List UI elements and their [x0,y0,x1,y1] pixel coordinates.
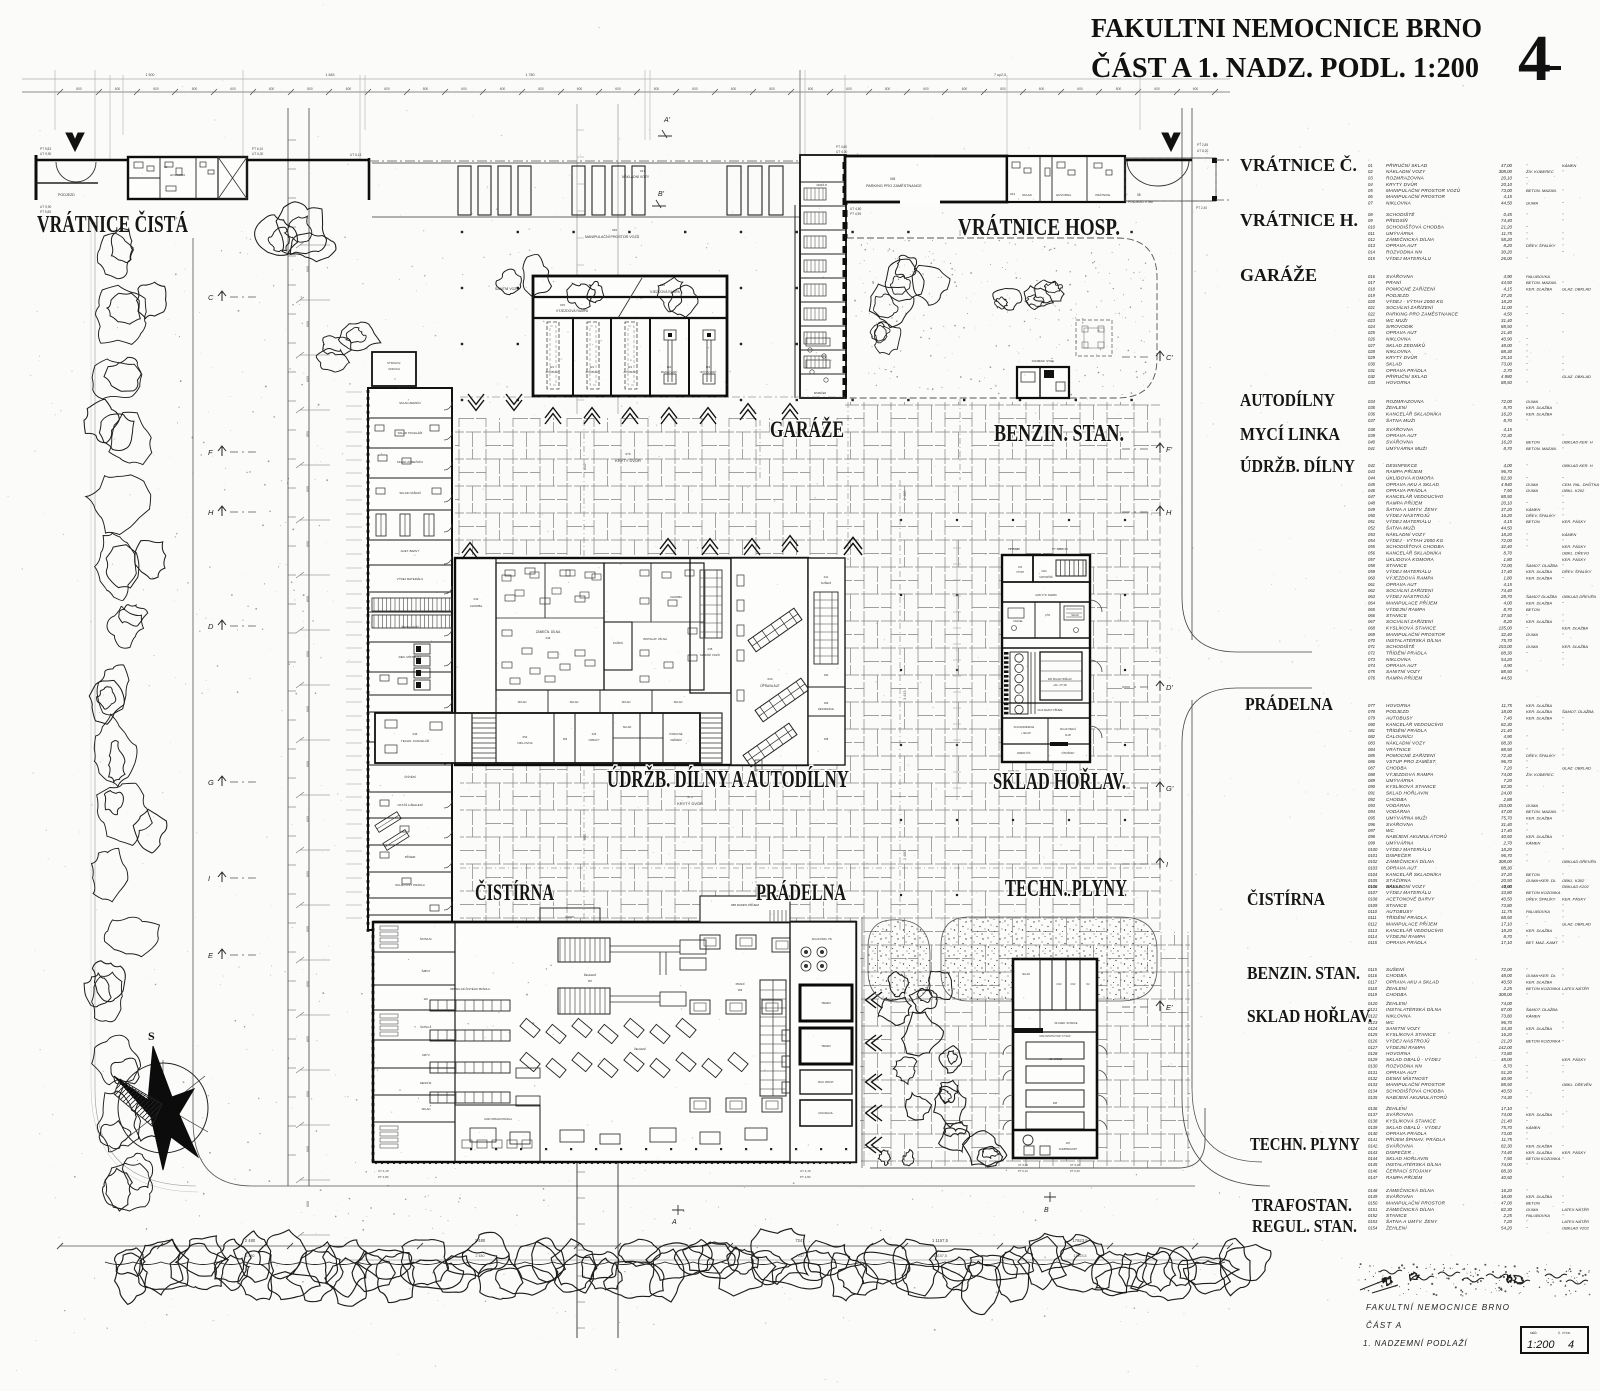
svg-text:600: 600 [923,87,929,91]
svg-text:RAMPA: RAMPA [565,915,574,919]
svg-text:600: 600 [306,431,310,437]
svg-text:POMOCNÉ ZAŘÍZENÍ: POMOCNÉ ZAŘÍZENÍ [1386,751,1436,758]
svg-text:2 480: 2 480 [903,850,907,860]
svg-text:049: 049 [1368,507,1376,512]
svg-text:016: 016 [1368,274,1376,279]
svg-text:600: 600 [384,87,390,91]
svg-text:078: 078 [1368,709,1376,714]
svg-text:INSTALAT. DÍLNA: INSTALAT. DÍLNA [643,637,667,641]
svg-text:17,10: 17,10 [1501,922,1513,927]
svg-text:059: 059 [1368,569,1376,574]
svg-text:20,50: 20,50 [1500,878,1513,883]
svg-text:PRANÍ: PRANÍ [736,982,745,986]
svg-text:SKLAD NÁŘADÍ: SKLAD NÁŘADÍ [399,490,420,495]
svg-text:LATEX NÁTĚR: LATEX NÁTĚR [1562,1207,1589,1212]
svg-text:SKLAD HOŘLAVIN: SKLAD HOŘLAVIN [1386,789,1429,796]
svg-text:KANCELÁŘ SKLADNÍKA: KANCELÁŘ SKLADNÍKA [1386,549,1441,556]
svg-text:0107: 0107 [1368,890,1378,895]
svg-text:SKLAD ZEDNÍCI: SKLAD ZEDNÍCI [399,401,421,405]
svg-text:2,70: 2,70 [1502,841,1512,846]
svg-text:0122 DESINFEKCE: 0122 DESINFEKCE [1014,727,1035,729]
svg-text:20,10: 20,10 [1500,182,1513,187]
svg-text:54,20: 54,20 [1501,1226,1513,1231]
svg-text:DISPEČER: DISPEČER [1386,1149,1412,1155]
svg-text:21,40: 21,40 [1500,330,1513,335]
svg-text:4,00: 4,00 [1503,601,1512,606]
svg-text:0118: 0118 [1368,986,1378,991]
svg-text:098 SKLAD ČISTÉHO PRÁDLA: 098 SKLAD ČISTÉHO PRÁDLA [450,986,490,991]
svg-text:0102: 0102 [1368,859,1378,864]
svg-text:VRÁTNICE ČISTÁ: VRÁTNICE ČISTÁ [37,211,188,238]
svg-text:011: 011 [1368,231,1375,236]
svg-text:PODJEZD: PODJEZD [58,193,75,197]
svg-text:600: 600 [306,981,310,987]
svg-text:KRYTÝ DVŮR: KRYTÝ DVŮR [615,458,641,463]
svg-text:SVÁŘOVNA: SVÁŘOVNA [1386,1192,1413,1199]
svg-text:S: S [148,1029,155,1043]
svg-text:11,00: 11,00 [1501,305,1512,310]
svg-text:0137: 0137 [1368,1112,1378,1117]
svg-text:UT 9,90: UT 9,90 [40,205,52,209]
svg-text:SKLAD OBALŮ - VÝDEJ: SKLAD OBALŮ - VÝDEJ [1386,1123,1441,1130]
svg-text:48,00: 48,00 [1501,343,1513,348]
svg-text:MANIPULAČNÍ PROSTOR: MANIPULAČNÍ PROSTOR [1386,631,1446,637]
svg-text:72,00: 72,00 [1501,538,1513,543]
svg-text:044: 044 [1368,476,1376,481]
svg-text:KER. DLAŽBA: KER. DLAŽBA [1526,703,1552,708]
svg-text:ŽEHLENÍ: ŽEHLENÍ [1385,1104,1407,1111]
svg-text:OPRAVA AUT: OPRAVA AUT [1386,866,1418,871]
svg-text:SKLAD HOŘLAV.: SKLAD HOŘLAV. [1247,1005,1372,1026]
svg-text:040: 040 [824,673,829,677]
svg-text:MANIPULACE PŘÍJEM: MANIPULACE PŘÍJEM [1386,599,1437,606]
svg-text:VÝDEJNÍ RAMPA: VÝDEJNÍ RAMPA [1386,933,1425,939]
svg-text:0139: 0139 [1368,1125,1378,1130]
svg-text:ÚDRŽB. DÍLNY: ÚDRŽB. DÍLNY [1240,455,1355,476]
svg-text:08: 08 [1137,193,1141,197]
svg-text:INSTALATÉRSKÁ DÍLNA: INSTALATÉRSKÁ DÍLNA [1386,1161,1441,1167]
svg-text:0104: 0104 [1368,872,1378,877]
svg-text:0113: 0113 [1368,928,1378,933]
svg-text:094: 094 [1368,809,1376,814]
svg-text:TŘÍDĚNÍ PRÁDLA: TŘÍDĚNÍ PRÁDLA [1386,649,1427,656]
svg-text:021: 021 [550,365,555,369]
svg-text:0122: 0122 [1368,1014,1378,1019]
svg-text:SKLAD: SKLAD [1386,362,1403,367]
svg-text:H: H [208,508,214,517]
svg-text:021: 021 [590,365,595,369]
svg-text:16,20: 16,20 [1501,1188,1513,1193]
svg-text:UT 8,20: UT 8,20 [1197,149,1209,153]
svg-text:308,00: 308,00 [1499,859,1513,864]
svg-text:089: 089 [1368,778,1376,783]
svg-text:KER. DLAŽBA: KER. DLAŽBA [1526,928,1552,933]
svg-text:046: 046 [1368,488,1376,493]
svg-text:OPRAVA AKU A SKLAD: OPRAVA AKU A SKLAD [1386,482,1439,487]
svg-text:AUTOBUSY: AUTOBUSY [1385,909,1414,914]
svg-text:058: 058 [1368,563,1376,568]
svg-text:066: 066 [1368,613,1376,618]
svg-text:1,80: 1,80 [1503,557,1512,562]
svg-text:ŠAMOT. DLAŽBA: ŠAMOT. DLAŽBA [1562,709,1594,714]
svg-text:600: 600 [583,464,587,470]
svg-text:0132 REGUL.: 0132 REGUL. [818,1112,834,1115]
svg-text:800: 800 [885,87,891,91]
svg-text:PT 8,15: PT 8,15 [1008,547,1019,551]
svg-text:067: 067 [1368,619,1376,624]
svg-text:ROZMRAZOVNA: ROZMRAZOVNA [1386,176,1424,181]
svg-text:8,70: 8,70 [1503,405,1512,410]
svg-text:96,70: 96,70 [1501,853,1513,858]
svg-text:37,20: 37,20 [1501,507,1513,512]
svg-text:88,30: 88,30 [1501,651,1513,656]
svg-text:0152: 0152 [1368,1213,1378,1218]
svg-text:VÝDEJ NÁSTROJŮ: VÝDEJ NÁSTROJŮ [1386,592,1430,599]
svg-text:060: 060 [1368,576,1376,581]
svg-text:2 480: 2 480 [476,1254,485,1258]
svg-text:0105 VÝD. RAMPA: 0105 VÝD. RAMPA [1035,594,1057,597]
svg-text:047: 047 [1066,1141,1071,1145]
svg-text:LATEX NÁTĚR: LATEX NÁTĚR [1562,1219,1589,1224]
svg-text:MYCÍ LINKA: MYCÍ LINKA [1240,423,1340,444]
svg-text:800: 800 [538,87,544,91]
svg-text:11,75: 11,75 [1501,1137,1512,1142]
svg-text:POMOCNÉ ZAŘÍZENÍ: POMOCNÉ ZAŘÍZENÍ [1386,285,1436,292]
svg-text:PT 2,40: PT 2,40 [1196,206,1207,210]
svg-text:ŽEHLENÍ: ŽEHLENÍ [1385,403,1407,410]
svg-text:FAKULTNÍ NEMOCNICE BRNO: FAKULTNÍ NEMOCNICE BRNO [1366,1302,1510,1312]
svg-text:16,20: 16,20 [1501,440,1513,445]
svg-text:7,20: 7,20 [1503,778,1512,783]
svg-text:CHODBA: CHODBA [470,604,482,608]
svg-text:076: 076 [625,452,630,456]
svg-text:C': C' [1166,353,1173,362]
svg-text:KÁMEN: KÁMEN [1526,1125,1540,1130]
svg-text:092: 092 [1368,797,1376,802]
svg-text:UT 4,15: UT 4,15 [800,1169,811,1173]
svg-text:SOCIÁLNÍ ZAŘÍZENÍ: SOCIÁLNÍ ZAŘÍZENÍ [1386,617,1434,624]
svg-text:PŘEDSÍŇ: PŘEDSÍŇ [1386,216,1408,223]
svg-text:GUMA: GUMA [1526,644,1538,649]
svg-text:SANITNÍ VOZY: SANITNÍ VOZY [1386,668,1421,674]
svg-text:06: 06 [1368,194,1373,199]
svg-text:I: I [1166,860,1168,869]
svg-text:600: 600 [808,87,814,91]
svg-text:800: 800 [192,87,198,91]
svg-text:KER. DLAŽBA: KER. DLAŽBA [1526,1144,1552,1149]
svg-text:KYSLÍKOVÁ STANICE: KYSLÍKOVÁ STANICE [1386,1118,1437,1124]
svg-text:PT 4,95: PT 4,95 [850,212,861,216]
svg-text:MANIPULAČNÍ PROSTOR VOZŮ: MANIPULAČNÍ PROSTOR VOZŮ [585,234,640,239]
svg-text:2,88: 2,88 [1502,797,1512,802]
svg-text:UMÝVÁRNA MUŽI: UMÝVÁRNA MUŽI [1386,814,1427,821]
svg-text:18,20: 18,20 [1501,532,1513,537]
svg-text:44,50: 44,50 [1501,676,1513,681]
svg-text:ŽEHLENÍ: ŽEHLENÍ [634,1046,646,1051]
svg-text:054: 054 [1368,538,1376,543]
svg-text:600: 600 [500,87,506,91]
svg-text:STÁČÍRNA: STÁČÍRNA [1386,877,1411,883]
svg-text:052: 052 [1368,526,1376,531]
svg-text:MANIPULAČNÍ PROSTOR VOZŮ: MANIPULAČNÍ PROSTOR VOZŮ [1386,186,1461,193]
svg-text:KÁMEN: KÁMEN [1562,532,1576,537]
svg-text:SKLAD: SKLAD [422,1107,431,1111]
svg-text:VRÁTNICE: VRÁTNICE [1095,193,1110,197]
svg-text:050: 050 [1368,513,1376,518]
svg-text:OBKL. K202: OBKL. K202 [1562,878,1585,883]
svg-text:029: 029 [1368,355,1376,360]
svg-text:076: 076 [687,795,692,799]
svg-text:0121: 0121 [1368,1007,1377,1012]
svg-text:8,20: 8,20 [1503,619,1512,624]
svg-text:+80 - 277,80: +80 - 277,80 [1053,684,1067,687]
svg-text:21,20: 21,20 [1500,225,1513,230]
svg-text:0141: 0141 [1368,1137,1377,1142]
svg-text:800: 800 [1000,87,1006,91]
svg-text:2 480: 2 480 [245,1238,256,1243]
svg-text:DISPEČER: DISPEČER [1386,852,1412,858]
svg-text:093: 093 [1368,803,1376,808]
svg-text:600: 600 [306,706,310,712]
svg-text:POMOCNÉ: POMOCNÉ [670,733,683,736]
svg-text:600: 600 [306,376,310,382]
svg-text:034: 034 [1368,399,1376,404]
svg-text:PALUBOVKA: PALUBOVKA [1526,909,1550,914]
svg-text:800: 800 [1116,87,1122,91]
svg-text:8,70: 8,70 [1503,446,1512,451]
svg-text:KÁMEN: KÁMEN [1526,841,1540,846]
svg-text:8,20: 8,20 [1503,243,1512,248]
svg-text:SVÁŘOVNA: SVÁŘOVNA [1386,272,1413,279]
svg-text:0146: 0146 [1368,1169,1378,1174]
svg-text:21,20: 21,20 [1500,1039,1513,1044]
svg-text:VÝDEJ NÁSTROJŮ: VÝDEJ NÁSTROJŮ [1386,1037,1430,1044]
svg-text:73,00: 73,00 [1501,188,1513,193]
svg-text:SKLAD OBALŮ - VÝDEJ: SKLAD OBALŮ - VÝDEJ [1386,1055,1441,1062]
svg-text:32,40: 32,40 [1501,544,1513,549]
svg-text:045: 045 [1368,482,1376,487]
svg-text:SKLAD: SKLAD [1071,614,1079,617]
svg-text:0145: 0145 [1368,1162,1378,1167]
svg-text:0149: 0149 [1368,1194,1378,1199]
svg-text:008: 008 [1053,1102,1058,1105]
svg-text:KANCELÁŘ SKLADNÍKA: KANCELÁŘ SKLADNÍKA [1386,870,1441,877]
svg-text:BENZIN. STAN.: BENZIN. STAN. [994,421,1124,447]
svg-text:CHODBA: CHODBA [1386,766,1407,771]
svg-text:UT 4,80: UT 4,80 [850,207,862,211]
svg-text:KER. DLAŽBA: KER. DLAŽBA [1526,1112,1552,1117]
svg-text:0101: 0101 [1368,853,1377,858]
svg-text:OBKL. K202: OBKL. K202 [1562,488,1585,493]
svg-text:73,80: 73,80 [1501,1014,1513,1019]
svg-text:PT 4,80: PT 4,80 [800,1175,811,1179]
svg-text:PARKING PRO ZAMĚSTNANCE: PARKING PRO ZAMĚSTNANCE [1386,310,1459,317]
svg-text:88,30: 88,30 [1501,1169,1513,1174]
svg-text:NÁKLADNÍ VOZY: NÁKLADNÍ VOZY [1386,531,1426,537]
svg-text:BETON KOZONKA: BETON KOZONKA [1526,1039,1561,1044]
svg-text:3 443: 3 443 [903,690,907,700]
svg-text:KER. DLAŽBA: KER. DLAŽBA [1562,644,1588,649]
svg-text:08: 08 [1368,212,1373,217]
svg-text:KANCELÁŘ SKLADNÍKA: KANCELÁŘ SKLADNÍKA [1386,410,1441,417]
svg-text:600: 600 [692,87,698,91]
svg-text:VRÁTNICE Č.: VRÁTNICE Č. [1240,154,1357,175]
svg-text:ZÁMEČNICKÁ DÍLNA: ZÁMEČNICKÁ DÍLNA [1385,858,1434,864]
svg-text:076: 076 [1368,676,1376,681]
svg-text:KER. DLAŽBA: KER. DLAŽBA [1526,834,1552,839]
svg-text:080: 080 [1368,722,1376,727]
svg-text:0133: 0133 [1368,1082,1378,1087]
svg-text:KER. DLAŽBA: KER. DLAŽBA [1526,980,1552,985]
svg-text:CHODBA: CHODBA [1386,797,1407,802]
svg-text:049 BENZ. STAN.: 049 BENZ. STAN. [1032,359,1055,363]
svg-text:BETON: BETON [1526,872,1540,877]
svg-text:VÝDEJ MATERIÁLU: VÝDEJ MATERIÁLU [1386,255,1432,261]
svg-text:UT 6,30: UT 6,30 [252,152,264,156]
svg-text:TŘÍDĚNÍ PRÁDLA: TŘÍDĚNÍ PRÁDLA [1386,726,1427,733]
svg-text:ZÁMEČNICKÁ DÍLNA: ZÁMEČNICKÁ DÍLNA [1385,1187,1434,1193]
svg-text:VODÁRNA: VODÁRNA [1386,808,1410,814]
svg-text:0105: 0105 [1368,878,1378,883]
svg-text:074: 074 [1368,663,1376,668]
svg-text:OBKLAD V202: OBKLAD V202 [1562,1226,1589,1231]
svg-text:18,20: 18,20 [1501,928,1513,933]
svg-text:0,45: 0,45 [1503,212,1512,217]
svg-text:A': A' [663,117,671,124]
svg-text:STANICE: STANICE [1386,903,1408,908]
svg-text:071: 071 [1368,644,1375,649]
svg-text:0119: 0119 [1368,992,1378,997]
svg-text:SCHODIŠTĚ: SCHODIŠTĚ [1386,642,1415,649]
svg-text:75,70: 75,70 [1501,1125,1513,1130]
svg-text:18,00: 18,00 [1501,709,1513,714]
svg-text:021: 021 [1368,305,1375,310]
svg-text:UT 6,00: UT 6,00 [1018,1163,1028,1167]
svg-text:72,00: 72,00 [1501,967,1513,972]
svg-text:96,70: 96,70 [1501,759,1513,764]
svg-text:48,00: 48,00 [1501,1057,1513,1062]
svg-text:096: 096 [738,988,743,992]
svg-text:INSTALATÉRSKÁ DÍLNA: INSTALATÉRSKÁ DÍLNA [1386,1006,1441,1012]
svg-text:073: 073 [1368,657,1376,662]
svg-text:02: 02 [164,165,168,169]
svg-text:VODÁRNA: VODÁRNA [1386,802,1410,808]
svg-text:0147: 0147 [1368,1175,1378,1180]
svg-text:027: 027 [1368,343,1376,348]
svg-text:035: 035 [1368,405,1376,410]
svg-text:017: 017 [640,169,645,173]
svg-text:015: 015 [560,303,565,307]
svg-text:DENNÍ MÍSTNOST: DENNÍ MÍSTNOST [1386,1075,1429,1081]
svg-text:BENZIN. STAN.: BENZIN. STAN. [1247,963,1360,983]
svg-text:UMÝV.N.VOZŮ: UMÝV.N.VOZŮ [700,371,717,374]
svg-text:WC MUŽI: WC MUŽI [1386,316,1408,323]
svg-text:PRANÍ: PRANÍ [1386,279,1402,285]
svg-text:ŠAMOT. DLAŽBA: ŠAMOT. DLAŽBA [1526,563,1558,568]
svg-text:ČÁST A 1. NADZ. PODL. 1:200: ČÁST A 1. NADZ. PODL. 1:200 [1091,51,1479,84]
svg-text:014: 014 [1368,250,1376,255]
svg-text:ŽIV. KOBEREC: ŽIV. KOBEREC [1525,169,1554,174]
svg-text:ACETONOVÉ BARVY: ACETONOVÉ BARVY [1385,896,1435,902]
svg-text:OPRAVA PRÁDLA: OPRAVA PRÁDLA [1386,1130,1427,1136]
svg-text:OPRAVA PRÁDLA: OPRAVA PRÁDLA [1386,939,1427,945]
svg-text:PT 4,80: PT 4,80 [378,1175,389,1179]
svg-text:VÝDEJ NÁSTROJŮ: VÝDEJ NÁSTROJŮ [1386,511,1430,518]
svg-text:MAZACÍ VOZŮ: MAZACÍ VOZŮ [661,371,678,374]
svg-text:600: 600 [153,87,159,91]
svg-text:072: 072 [1368,651,1376,656]
svg-text:32,40: 32,40 [1501,632,1513,637]
svg-text:VÝDEJ - VÝTAH 2000 KG: VÝDEJ - VÝTAH 2000 KG [1386,298,1444,304]
svg-text:051: 051 [1368,519,1375,524]
svg-text:PŘÍRUČNÍ SKLAD: PŘÍRUČNÍ SKLAD [1386,372,1428,379]
svg-text:VÝDEJ MATERIÁLU: VÝDEJ MATERIÁLU [1386,889,1432,895]
svg-text:PŘÍJEM: PŘÍJEM [405,854,416,859]
svg-text:F: F [208,448,213,457]
svg-text:ŠAMOT. DLAŽBA: ŠAMOT. DLAŽBA [1526,1007,1558,1012]
svg-text:87,00: 87,00 [1501,1007,1513,1012]
svg-text:GUMA: GUMA [1526,482,1538,487]
svg-text:RAMPA PŘÍJEM: RAMPA PŘÍJEM [1386,467,1422,474]
svg-text:88,30: 88,30 [1501,741,1513,746]
svg-text:MĚŘ.: MĚŘ. [1530,1330,1538,1335]
svg-text:07: 07 [1368,201,1373,206]
svg-text:CHODBA: CHODBA [1386,992,1407,997]
svg-text:030: 030 [1368,362,1376,367]
svg-text:GLAZ. OBKLAD: GLAZ. OBKLAD [1562,922,1591,927]
svg-text:ČISTÍRNA: ČISTÍRNA [475,879,554,905]
svg-text:079: 079 [1368,716,1376,721]
svg-text:037: 037 [1368,418,1376,423]
svg-text:006 SKLAD HOŘLAV.: 006 SKLAD HOŘLAV. [1048,678,1073,681]
svg-text:GLAZ. OBKLAD: GLAZ. OBKLAD [1562,287,1591,292]
svg-text:PARKING PRO ZAMĚSTNANCE: PARKING PRO ZAMĚSTNANCE [866,183,922,188]
svg-text:135,00: 135,00 [1499,626,1513,631]
svg-text:0129: 0129 [1368,1057,1378,1062]
svg-text:036: 036 [413,732,418,736]
svg-text:SKLAD: SKLAD [570,700,579,704]
svg-text:BETON KOZONKA: BETON KOZONKA [1526,890,1561,895]
svg-text:72,00: 72,00 [1501,563,1513,568]
svg-text:KER. DLAŽBA: KER. DLAŽBA [1526,412,1552,417]
svg-text:33,80: 33,80 [1501,890,1513,895]
svg-text:16,20: 16,20 [1501,412,1513,417]
svg-text:0100 OPRAVA PRÁDLA: 0100 OPRAVA PRÁDLA [484,1117,512,1121]
svg-text:VJEZDOVÁ RAMPA: VJEZDOVÁ RAMPA [650,290,681,294]
svg-text:SKLAD: SKLAD [1022,193,1033,197]
svg-text:OBKLAD KER. H: OBKLAD KER. H [1562,440,1593,445]
svg-text:800: 800 [423,87,429,91]
svg-text:I: I [208,874,210,883]
svg-text:72,00: 72,00 [1501,399,1513,404]
svg-text:74,00: 74,00 [1501,1001,1513,1006]
svg-text:KER. DLAŽBA: KER. DLAŽBA [1526,601,1552,606]
svg-text:4,90: 4,90 [1503,663,1512,668]
svg-text:1 500: 1 500 [146,73,155,77]
svg-text:ČISTÍRNA: ČISTÍRNA [1247,888,1325,909]
svg-text:KER. PÁSKY: KER. PÁSKY [1562,1057,1586,1062]
svg-text:ZÁMEČNICKÁ DÍLNA: ZÁMEČNICKÁ DÍLNA [1385,1206,1434,1212]
svg-text:4 880: 4 880 [1501,374,1513,379]
svg-text:018: 018 [1368,287,1376,292]
svg-text:070: 070 [1368,638,1376,643]
svg-text:600: 600 [1154,87,1160,91]
svg-text:4,15: 4,15 [1503,194,1512,199]
svg-text:PT 6,10: PT 6,10 [1018,1169,1028,1173]
svg-text:GUMA: GUMA [1526,201,1538,206]
svg-text:053: 053 [1368,532,1376,537]
svg-text:MANIPULAČNÍ PROSTOR: MANIPULAČNÍ PROSTOR [1386,1200,1446,1206]
